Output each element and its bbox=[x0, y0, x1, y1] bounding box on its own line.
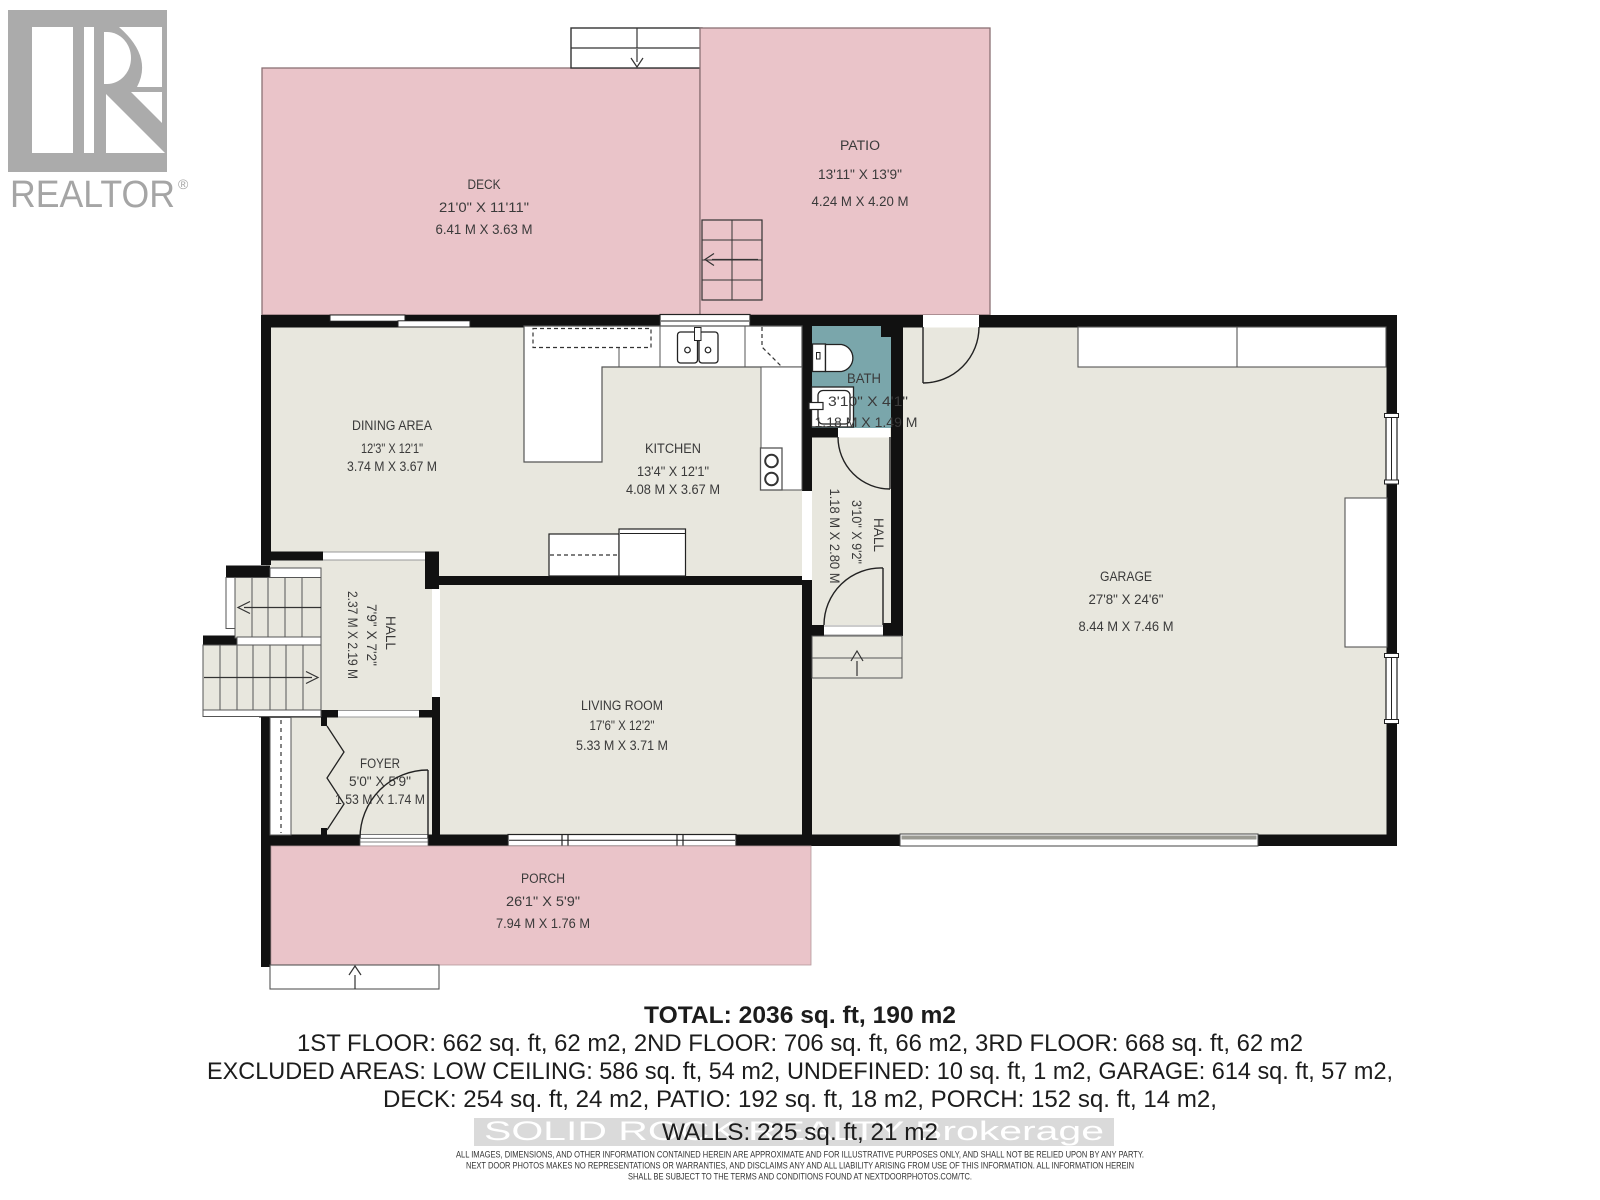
svg-text:5'0" X 5'9": 5'0" X 5'9" bbox=[349, 774, 411, 789]
svg-text:13'4" X 12'1": 13'4" X 12'1" bbox=[637, 464, 709, 479]
svg-text:EXCLUDED AREAS: LOW CEILING: 5: EXCLUDED AREAS: LOW CEILING: 586 sq. ft,… bbox=[207, 1058, 1393, 1085]
svg-text:2.37 M X 2.19 M: 2.37 M X 2.19 M bbox=[345, 591, 360, 679]
svg-text:®: ® bbox=[178, 176, 189, 192]
svg-text:3.74 M X 3.67 M: 3.74 M X 3.67 M bbox=[347, 459, 437, 474]
svg-text:HALL: HALL bbox=[383, 616, 398, 650]
svg-text:FOYER: FOYER bbox=[360, 756, 400, 771]
svg-text:3'10" X 9'2": 3'10" X 9'2" bbox=[849, 500, 864, 564]
svg-text:GARAGE: GARAGE bbox=[1100, 569, 1152, 584]
svg-text:WALLS: 225 sq. ft, 21 m2: WALLS: 225 sq. ft, 21 m2 bbox=[662, 1119, 938, 1146]
svg-text:PORCH: PORCH bbox=[521, 871, 565, 886]
svg-text:DECK: DECK bbox=[468, 177, 501, 192]
svg-text:LIVING ROOM: LIVING ROOM bbox=[581, 698, 663, 713]
svg-text:12'3" X 12'1": 12'3" X 12'1" bbox=[361, 441, 423, 456]
svg-text:PATIO: PATIO bbox=[840, 138, 880, 153]
svg-text:BATH: BATH bbox=[847, 371, 881, 386]
svg-text:DECK: 254 sq. ft, 24 m2, PATIO: DECK: 254 sq. ft, 24 m2, PATIO: 192 sq. … bbox=[383, 1086, 1217, 1113]
svg-text:SHALL BE SUBJECT TO THE TERMS: SHALL BE SUBJECT TO THE TERMS AND CONDIT… bbox=[628, 1172, 972, 1183]
svg-text:26'1" X 5'9": 26'1" X 5'9" bbox=[506, 894, 580, 909]
svg-text:7'9" X 7'2": 7'9" X 7'2" bbox=[364, 604, 379, 666]
svg-text:1.53 M X 1.74 M: 1.53 M X 1.74 M bbox=[335, 792, 425, 807]
svg-text:6.41 M X 3.63 M: 6.41 M X 3.63 M bbox=[436, 222, 533, 237]
svg-text:NEXT DOOR PHOTOS MAKES NO REPR: NEXT DOOR PHOTOS MAKES NO REPRESENTATION… bbox=[466, 1161, 1134, 1172]
svg-text:1ST FLOOR: 662 sq. ft, 62 m2,: 1ST FLOOR: 662 sq. ft, 62 m2, 2ND FLOOR:… bbox=[297, 1030, 1303, 1057]
svg-text:27'8" X 24'6": 27'8" X 24'6" bbox=[1089, 592, 1164, 607]
svg-text:DINING AREA: DINING AREA bbox=[352, 418, 432, 433]
svg-text:1.18 M X 2.80 M: 1.18 M X 2.80 M bbox=[827, 489, 842, 584]
svg-text:HALL: HALL bbox=[871, 518, 886, 552]
svg-text:3'10" X 4'1": 3'10" X 4'1" bbox=[828, 394, 908, 409]
svg-text:4.08 M X 3.67 M: 4.08 M X 3.67 M bbox=[626, 482, 720, 497]
svg-text:8.44 M X 7.46 M: 8.44 M X 7.46 M bbox=[1079, 619, 1174, 634]
svg-text:ALL IMAGES, DIMENSIONS, AND OT: ALL IMAGES, DIMENSIONS, AND OTHER INFORM… bbox=[456, 1150, 1144, 1161]
svg-text:REALTOR: REALTOR bbox=[10, 174, 175, 216]
svg-text:1.18 M X 1.49 M: 1.18 M X 1.49 M bbox=[815, 415, 918, 430]
svg-text:21'0" X 11'11": 21'0" X 11'11" bbox=[439, 200, 529, 215]
svg-text:TOTAL: 2036 sq. ft, 190 m2: TOTAL: 2036 sq. ft, 190 m2 bbox=[644, 1002, 956, 1029]
svg-text:4.24 M X 4.20 M: 4.24 M X 4.20 M bbox=[812, 194, 909, 209]
svg-text:17'6" X 12'2": 17'6" X 12'2" bbox=[590, 718, 655, 733]
svg-text:13'11" X 13'9": 13'11" X 13'9" bbox=[818, 167, 902, 182]
svg-text:KITCHEN: KITCHEN bbox=[645, 441, 701, 456]
svg-text:7.94 M X 1.76 M: 7.94 M X 1.76 M bbox=[496, 916, 590, 931]
svg-text:5.33 M X 3.71 M: 5.33 M X 3.71 M bbox=[576, 738, 668, 753]
